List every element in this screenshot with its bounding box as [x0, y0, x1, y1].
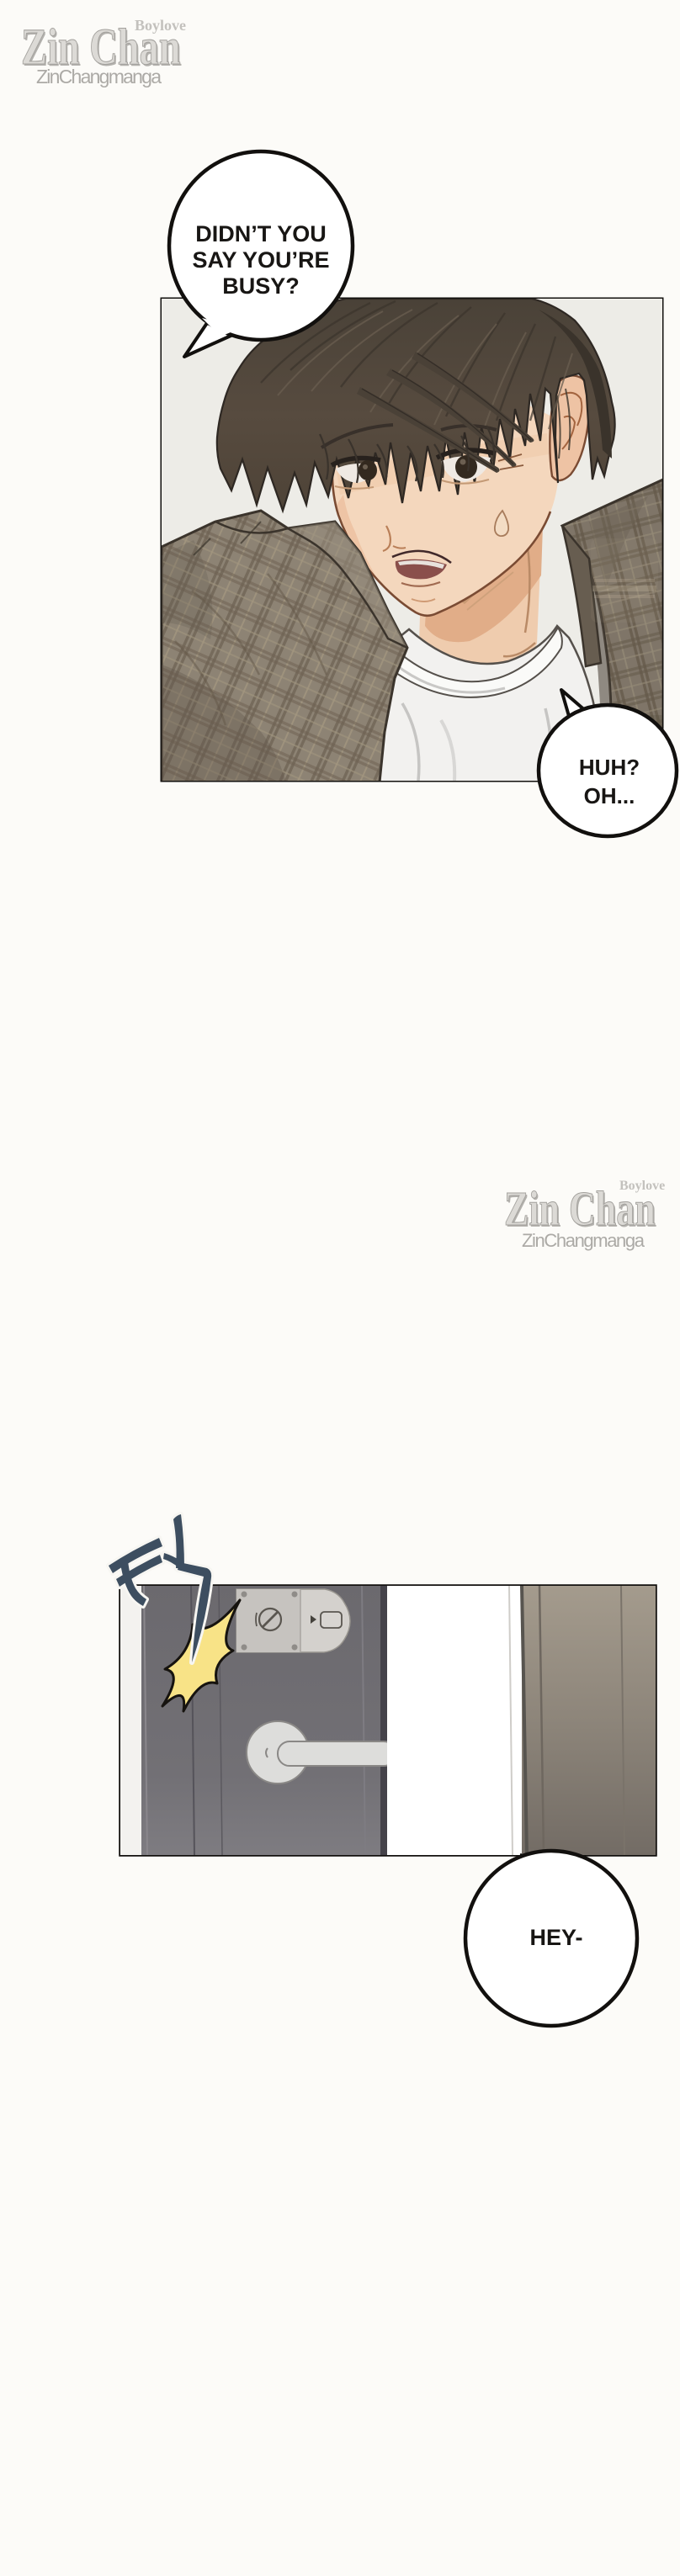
- svg-text:HUH?: HUH?: [579, 755, 640, 780]
- svg-text:HEY-: HEY-: [529, 1925, 582, 1950]
- svg-text:Zin Chan: Zin Chan: [504, 1182, 656, 1236]
- svg-text:BUSY?: BUSY?: [222, 273, 300, 299]
- svg-text:ZinChangmanga: ZinChangmanga: [36, 66, 162, 87]
- svg-text:SAY YOU’RE: SAY YOU’RE: [192, 247, 329, 273]
- svg-text:OH...: OH...: [584, 783, 635, 808]
- svg-text:ZinChangmanga: ZinChangmanga: [522, 1230, 645, 1251]
- svg-text:DIDN’T YOU: DIDN’T YOU: [195, 221, 327, 246]
